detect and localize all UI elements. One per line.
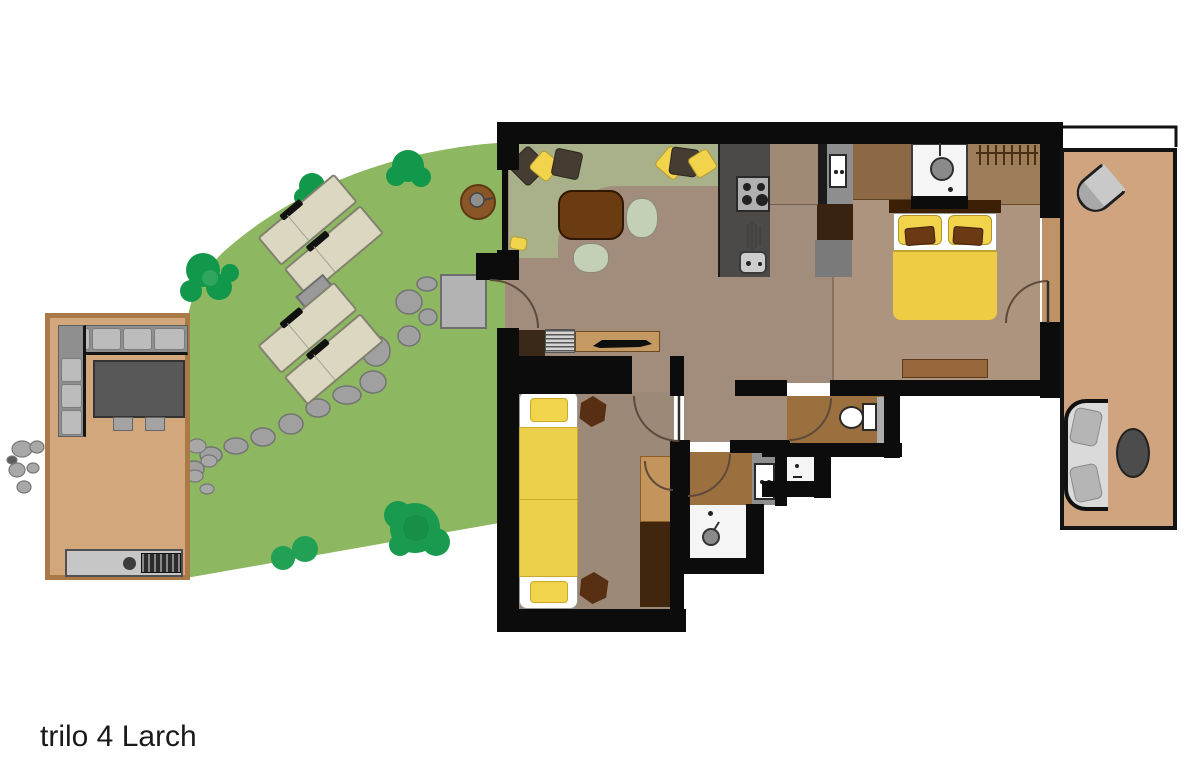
sink-tap xyxy=(793,476,802,478)
outdoor-stool xyxy=(145,417,165,431)
canopy-line xyxy=(1063,127,1176,147)
pouf xyxy=(626,198,658,238)
tree-icon xyxy=(180,253,239,302)
wall xyxy=(762,481,830,497)
cabinet xyxy=(517,330,545,357)
deck-armchair xyxy=(1069,162,1127,219)
bed-duvet xyxy=(519,427,578,501)
outdoor-table xyxy=(93,360,185,418)
bbq-knob xyxy=(123,557,136,570)
wall xyxy=(497,122,519,170)
bbq-grate xyxy=(141,553,181,573)
window-wall xyxy=(502,166,508,252)
hallway-floor xyxy=(684,356,787,442)
wall xyxy=(746,504,764,574)
shoe-rack xyxy=(545,329,575,353)
door-threshold xyxy=(1042,218,1060,322)
sun-lounger-pair xyxy=(256,280,388,410)
closet-open xyxy=(640,456,674,522)
wall xyxy=(497,356,632,394)
toilet-icon xyxy=(839,406,864,429)
bed-pillow xyxy=(530,581,568,603)
tree-icon xyxy=(384,501,450,556)
wardrobe xyxy=(968,143,1040,205)
wall xyxy=(497,250,519,280)
shower-control xyxy=(708,511,713,516)
wall xyxy=(476,253,499,280)
coffee-table xyxy=(558,190,624,240)
wall xyxy=(775,440,787,506)
stove-icon xyxy=(736,176,770,212)
wall xyxy=(497,122,1063,144)
wall xyxy=(497,609,686,632)
floor-pillow xyxy=(550,147,583,180)
utility-column xyxy=(818,143,827,207)
bench-cushion xyxy=(1069,462,1104,503)
cabinet xyxy=(815,240,852,277)
right-deck xyxy=(1060,148,1177,530)
wall xyxy=(497,392,519,632)
toilet-tank xyxy=(862,403,877,431)
cabinet xyxy=(817,204,853,240)
lounger-headrest xyxy=(279,199,303,221)
wall xyxy=(670,356,684,396)
shower-head-icon xyxy=(930,157,954,181)
door-mat xyxy=(441,275,486,328)
pouf xyxy=(573,243,609,273)
bed-cushion xyxy=(952,226,983,246)
bed-cushion xyxy=(904,226,935,247)
bush-icon xyxy=(271,536,318,570)
bbq-grill xyxy=(65,549,183,577)
outdoor-stool xyxy=(113,417,133,431)
bedroom-bench xyxy=(902,359,988,378)
wall xyxy=(830,380,1063,396)
bed-pillow xyxy=(530,398,568,422)
shower-head-icon xyxy=(702,528,720,546)
bed-duvet xyxy=(519,499,578,577)
floor-pillow xyxy=(509,236,528,252)
bench-cushion xyxy=(1069,406,1104,447)
left-deck xyxy=(45,313,190,580)
kitchen-sink-icon xyxy=(739,251,767,274)
floor-plan-canvas: trilo 4 Larch xyxy=(0,0,1200,759)
closet xyxy=(640,522,674,607)
outdoor-sofa xyxy=(58,325,86,437)
wall xyxy=(884,394,900,458)
entry-bench xyxy=(575,331,660,352)
lounger-headrest xyxy=(279,307,303,329)
sink-drain xyxy=(795,464,799,468)
deck-oval-table xyxy=(1116,428,1150,478)
wall xyxy=(735,380,787,396)
tree-icon xyxy=(386,150,431,187)
cabinet xyxy=(853,143,913,200)
shower-icon xyxy=(911,143,968,198)
washing-machine-icon xyxy=(829,154,847,188)
plan-title: trilo 4 Larch xyxy=(40,720,197,754)
wall xyxy=(674,440,690,574)
wall xyxy=(911,196,968,209)
deck-bench xyxy=(1064,399,1108,511)
bed-duvet xyxy=(893,250,997,320)
cabinet xyxy=(770,143,818,205)
garden-planter xyxy=(461,185,495,219)
